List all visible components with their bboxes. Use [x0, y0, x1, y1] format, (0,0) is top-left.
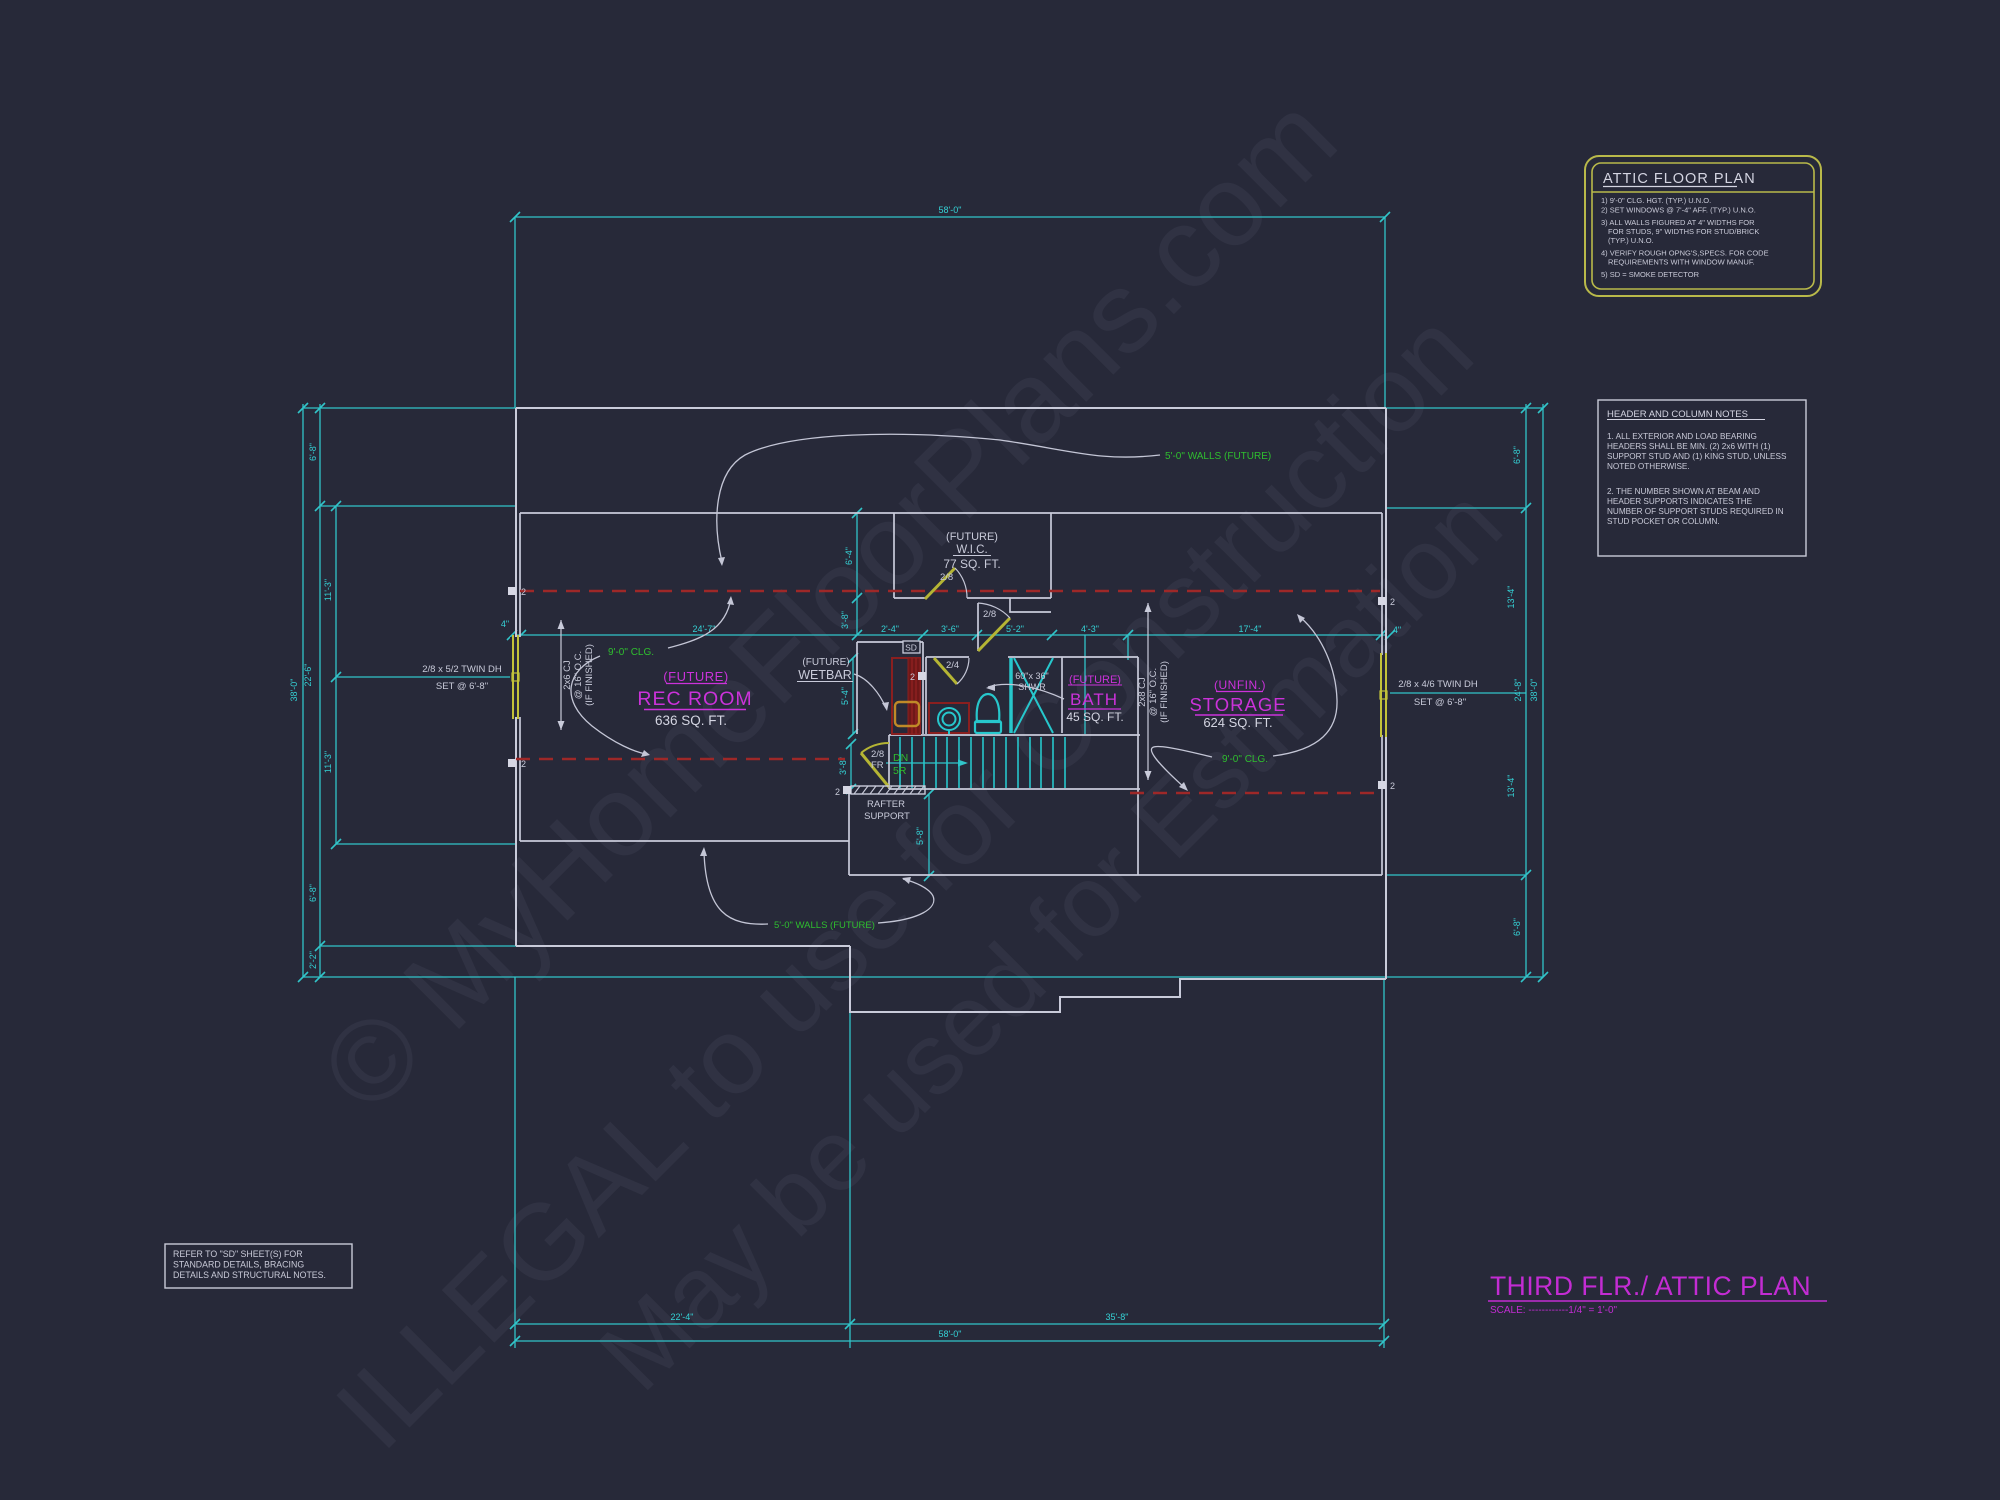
svg-text:24'-8": 24'-8"	[1513, 679, 1523, 702]
svg-text:2x8 CJ: 2x8 CJ	[1137, 677, 1148, 707]
svg-text:@ 16" O.C.: @ 16" O.C.	[1148, 668, 1159, 716]
svg-text:24'-7": 24'-7"	[693, 624, 716, 634]
svg-text:REC ROOM: REC ROOM	[637, 688, 752, 710]
svg-text:11'-3": 11'-3"	[323, 751, 333, 773]
svg-text:77 SQ. FT.: 77 SQ. FT.	[943, 557, 1000, 571]
svg-text:2'-2": 2'-2"	[308, 951, 318, 969]
svg-text:SUPPORT: SUPPORT	[864, 811, 910, 822]
svg-text:BATH: BATH	[1070, 690, 1118, 709]
svg-text:58'-0": 58'-0"	[939, 1329, 962, 1339]
svg-text:(IF FINISHED): (IF FINISHED)	[1159, 661, 1170, 723]
svg-text:NOTED OTHERWISE.: NOTED OTHERWISE.	[1607, 462, 1690, 471]
svg-text:6'-8": 6'-8"	[308, 443, 318, 461]
svg-text:NUMBER OF SUPPORT STUDS REQUIR: NUMBER OF SUPPORT STUDS REQUIRED IN	[1607, 507, 1784, 516]
svg-text:(FUTURE): (FUTURE)	[663, 669, 728, 684]
svg-text:DETAILS AND STRUCTURAL NOTE: DETAILS AND STRUCTURAL NOTES.	[173, 1270, 326, 1280]
svg-text:1. ALL EXTERIOR AND LOAD BEARI: 1. ALL EXTERIOR AND LOAD BEARING	[1607, 432, 1757, 441]
svg-text:6'-8": 6'-8"	[1512, 446, 1522, 464]
svg-text:SUPPORT STUD AND (1) KING STUD: SUPPORT STUD AND (1) KING STUD, UNLESS	[1607, 452, 1787, 461]
svg-text:2/8 x 4/6 TWIN DH: 2/8 x 4/6 TWIN DH	[1398, 679, 1478, 690]
svg-text:2: 2	[1390, 781, 1395, 791]
svg-text:SET @ 6'-8": SET @ 6'-8"	[1414, 697, 1466, 708]
svg-text:2'-4": 2'-4"	[881, 624, 899, 634]
svg-text:2/8: 2/8	[983, 609, 996, 620]
svg-text:2: 2	[521, 759, 526, 769]
svg-text:2: 2	[1390, 597, 1395, 607]
svg-text:4": 4"	[1393, 625, 1401, 635]
svg-text:6'-8": 6'-8"	[1512, 918, 1522, 936]
svg-text:3) ALL WALLS FIGURED AT 4" WID: 3) ALL WALLS FIGURED AT 4" WIDTHS FOR	[1601, 218, 1755, 227]
svg-text:2: 2	[835, 787, 840, 797]
svg-text:HEADER AND COLUMN NOTES: HEADER AND COLUMN NOTES	[1607, 409, 1748, 420]
svg-text:WETBAR: WETBAR	[798, 668, 851, 682]
svg-text:FOR STUDS, 9" WIDTHS FOR STUD/: FOR STUDS, 9" WIDTHS FOR STUD/BRICK	[1608, 227, 1759, 236]
svg-text:4'-3": 4'-3"	[1081, 624, 1099, 634]
svg-text:60"x 36": 60"x 36"	[1015, 671, 1048, 681]
svg-text:2. THE NUMBER SHOWN AT BEAM AN: 2. THE NUMBER SHOWN AT BEAM AND	[1607, 487, 1760, 496]
svg-text:(FUTURE): (FUTURE)	[946, 531, 998, 543]
svg-text:13'-4": 13'-4"	[1506, 586, 1516, 609]
svg-text:REFER TO "SD" SHEET(S) FO: REFER TO "SD" SHEET(S) FOR	[173, 1249, 303, 1259]
svg-text:(TYP.) U.N.O.: (TYP.) U.N.O.	[1608, 236, 1654, 245]
svg-text:9'-0" CLG.: 9'-0" CLG.	[608, 647, 654, 658]
svg-text:3'-6": 3'-6"	[941, 624, 959, 634]
svg-text:636 SQ. FT.: 636 SQ. FT.	[655, 713, 727, 728]
svg-text:(FUTURE): (FUTURE)	[1069, 674, 1121, 686]
svg-text:2/4: 2/4	[946, 660, 959, 671]
svg-text:5'-0" WALLS (FUTURE): 5'-0" WALLS (FUTURE)	[1165, 451, 1271, 462]
svg-text:DN: DN	[893, 752, 908, 764]
svg-text:38'-0": 38'-0"	[1529, 679, 1539, 702]
svg-text:2: 2	[910, 672, 915, 682]
svg-text:5'-2": 5'-2"	[1006, 624, 1024, 634]
svg-text:17'-4": 17'-4"	[1239, 624, 1262, 634]
svg-text:THIRD FLR./ ATTIC PLAN: THIRD FLR./ ATTIC PLAN	[1490, 1271, 1811, 1301]
svg-text:5'-0" WALLS (FUTURE): 5'-0" WALLS (FUTURE)	[774, 920, 875, 931]
svg-text:4": 4"	[501, 619, 509, 629]
svg-text:35'-8": 35'-8"	[1106, 1312, 1129, 1322]
svg-text:HEADER SUPPORTS INDICATES THE: HEADER SUPPORTS INDICATES THE	[1607, 497, 1753, 506]
svg-text:(IF FINISHED): (IF FINISHED)	[584, 644, 595, 706]
svg-text:SET @ 6'-8": SET @ 6'-8"	[436, 681, 488, 692]
svg-text:45 SQ. FT.: 45 SQ. FT.	[1066, 710, 1123, 724]
svg-text:2/8 x 5/2 TWIN DH: 2/8 x 5/2 TWIN DH	[422, 664, 502, 675]
svg-text:SD: SD	[905, 643, 917, 653]
svg-text:FR: FR	[871, 760, 884, 771]
svg-text:22'-6": 22'-6"	[303, 664, 313, 687]
svg-text:5'-8": 5'-8"	[915, 827, 925, 845]
svg-text:6'-8": 6'-8"	[308, 884, 318, 902]
svg-text:2/8: 2/8	[871, 749, 884, 760]
svg-text:SCALE: ------------1/4" = 1'-: SCALE: ------------1/4" = 1'-0"	[1490, 1305, 1618, 1316]
svg-text:RAFTER: RAFTER	[867, 799, 905, 810]
svg-text:STUD POCKET OR COLUMN.: STUD POCKET OR COLUMN.	[1607, 517, 1720, 526]
svg-text:2/8: 2/8	[940, 572, 953, 583]
svg-text:58'-0": 58'-0"	[939, 205, 962, 215]
svg-text:6'-4": 6'-4"	[844, 547, 854, 565]
svg-text:9'-0" CLG.: 9'-0" CLG.	[1222, 754, 1268, 765]
svg-text:3'-8": 3'-8"	[840, 611, 850, 629]
svg-text:HEADERS SHALL BE MIN. (2) 2x6: HEADERS SHALL BE MIN. (2) 2x6 WITH (1)	[1607, 442, 1771, 451]
svg-text:2: 2	[521, 587, 526, 597]
svg-text:(UNFIN.): (UNFIN.)	[1214, 678, 1266, 692]
svg-text:5R: 5R	[893, 765, 907, 777]
svg-text:REQUIREMENTS WITH WINDOW MANUF: REQUIREMENTS WITH WINDOW MANUF.	[1608, 258, 1755, 267]
svg-text:ATTIC FLOOR PLAN: ATTIC FLOOR PLAN	[1603, 171, 1756, 187]
svg-text:5'-4": 5'-4"	[840, 687, 850, 705]
svg-text:STORAGE: STORAGE	[1189, 694, 1286, 715]
svg-text:624 SQ. FT.: 624 SQ. FT.	[1203, 715, 1272, 730]
svg-text:(FUTURE): (FUTURE)	[802, 657, 849, 668]
svg-text:22'-4": 22'-4"	[671, 1312, 694, 1322]
svg-text:11'-3": 11'-3"	[323, 579, 333, 601]
svg-text:5) SD = SMOKE DETECTOR: 5) SD = SMOKE DETECTOR	[1601, 270, 1700, 279]
svg-text:2) SET WINDOWS @ 7'-4" AFF. (T: 2) SET WINDOWS @ 7'-4" AFF. (TYP.) U.N.O…	[1601, 206, 1756, 215]
svg-text:13'-4": 13'-4"	[1506, 775, 1516, 798]
svg-text:4) VERIFY ROUGH OPNG'S,SPECS.: 4) VERIFY ROUGH OPNG'S,SPECS. FOR CODE	[1601, 249, 1769, 258]
svg-text:1) 9'-0" CLG. HGT. (TYP.) U.N: 1) 9'-0" CLG. HGT. (TYP.) U.N.O.	[1601, 196, 1711, 205]
svg-text:38'-0": 38'-0"	[289, 679, 299, 702]
svg-text:STANDARD DETAILS, BRACING: STANDARD DETAILS, BRACING	[173, 1260, 304, 1270]
svg-text:W.I.C.: W.I.C.	[956, 544, 987, 556]
